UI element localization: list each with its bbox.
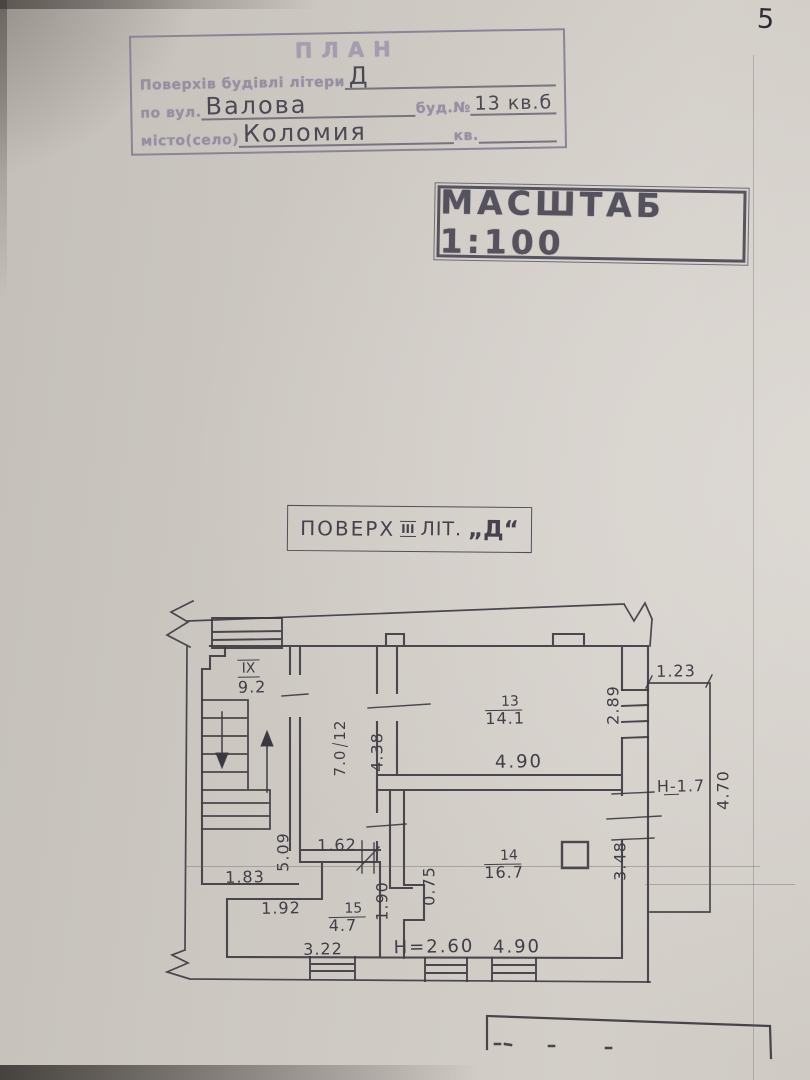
photo-shadow-left <box>0 0 7 300</box>
scan-streak <box>185 866 760 867</box>
room-14-label: 14 16.7 <box>484 846 524 881</box>
dim-4-90-room14: 4.90 <box>493 936 541 958</box>
dim-4-38: 4.38 <box>368 732 387 772</box>
ceiling-height-label: Н=2.60 <box>393 936 474 958</box>
dim-3-48: 3.48 <box>611 841 630 881</box>
dim-0-75: 0.75 <box>420 866 439 906</box>
room-13-area: 14.1 <box>485 710 525 727</box>
dim-1-92: 1.92 <box>261 898 301 918</box>
stairwell-number: IX <box>237 659 259 677</box>
room-15-label: 15 4.7 <box>328 899 365 934</box>
dim-2-89: 2.89 <box>604 685 623 725</box>
dim-1-62: 1.62 <box>317 835 357 855</box>
dim-1-90: 1.90 <box>373 881 392 921</box>
photo-shadow-bottom <box>0 1065 480 1080</box>
stairwell-label: IX 9.2 <box>237 657 266 696</box>
photo-shadow-top <box>0 0 320 9</box>
dim-1-83: 1.83 <box>225 867 265 887</box>
room-12-label: 7.0 12 <box>331 720 349 777</box>
balcony-height-label: Н-1.7 <box>657 776 706 796</box>
dim-4-70: 4.70 <box>714 770 733 810</box>
room-12-area: 7.0 <box>331 750 349 777</box>
stairwell-area: 9.2 <box>238 677 267 696</box>
room-13-label: 13 14.1 <box>485 692 525 727</box>
dim-4-90-room13: 4.90 <box>495 751 543 773</box>
scanned-page: 5 ПЛАН Поверхів будівлі літери Д по вул.… <box>0 0 810 1080</box>
dim-3-22: 3.22 <box>303 939 343 959</box>
dim-1-23: 1.23 <box>656 661 696 681</box>
page-fold-line <box>753 55 754 1080</box>
room-12-number: 12 <box>331 720 349 741</box>
floor-plan-drawing <box>0 0 810 1080</box>
room-15-area: 4.7 <box>329 917 366 934</box>
scan-streak <box>645 884 795 885</box>
